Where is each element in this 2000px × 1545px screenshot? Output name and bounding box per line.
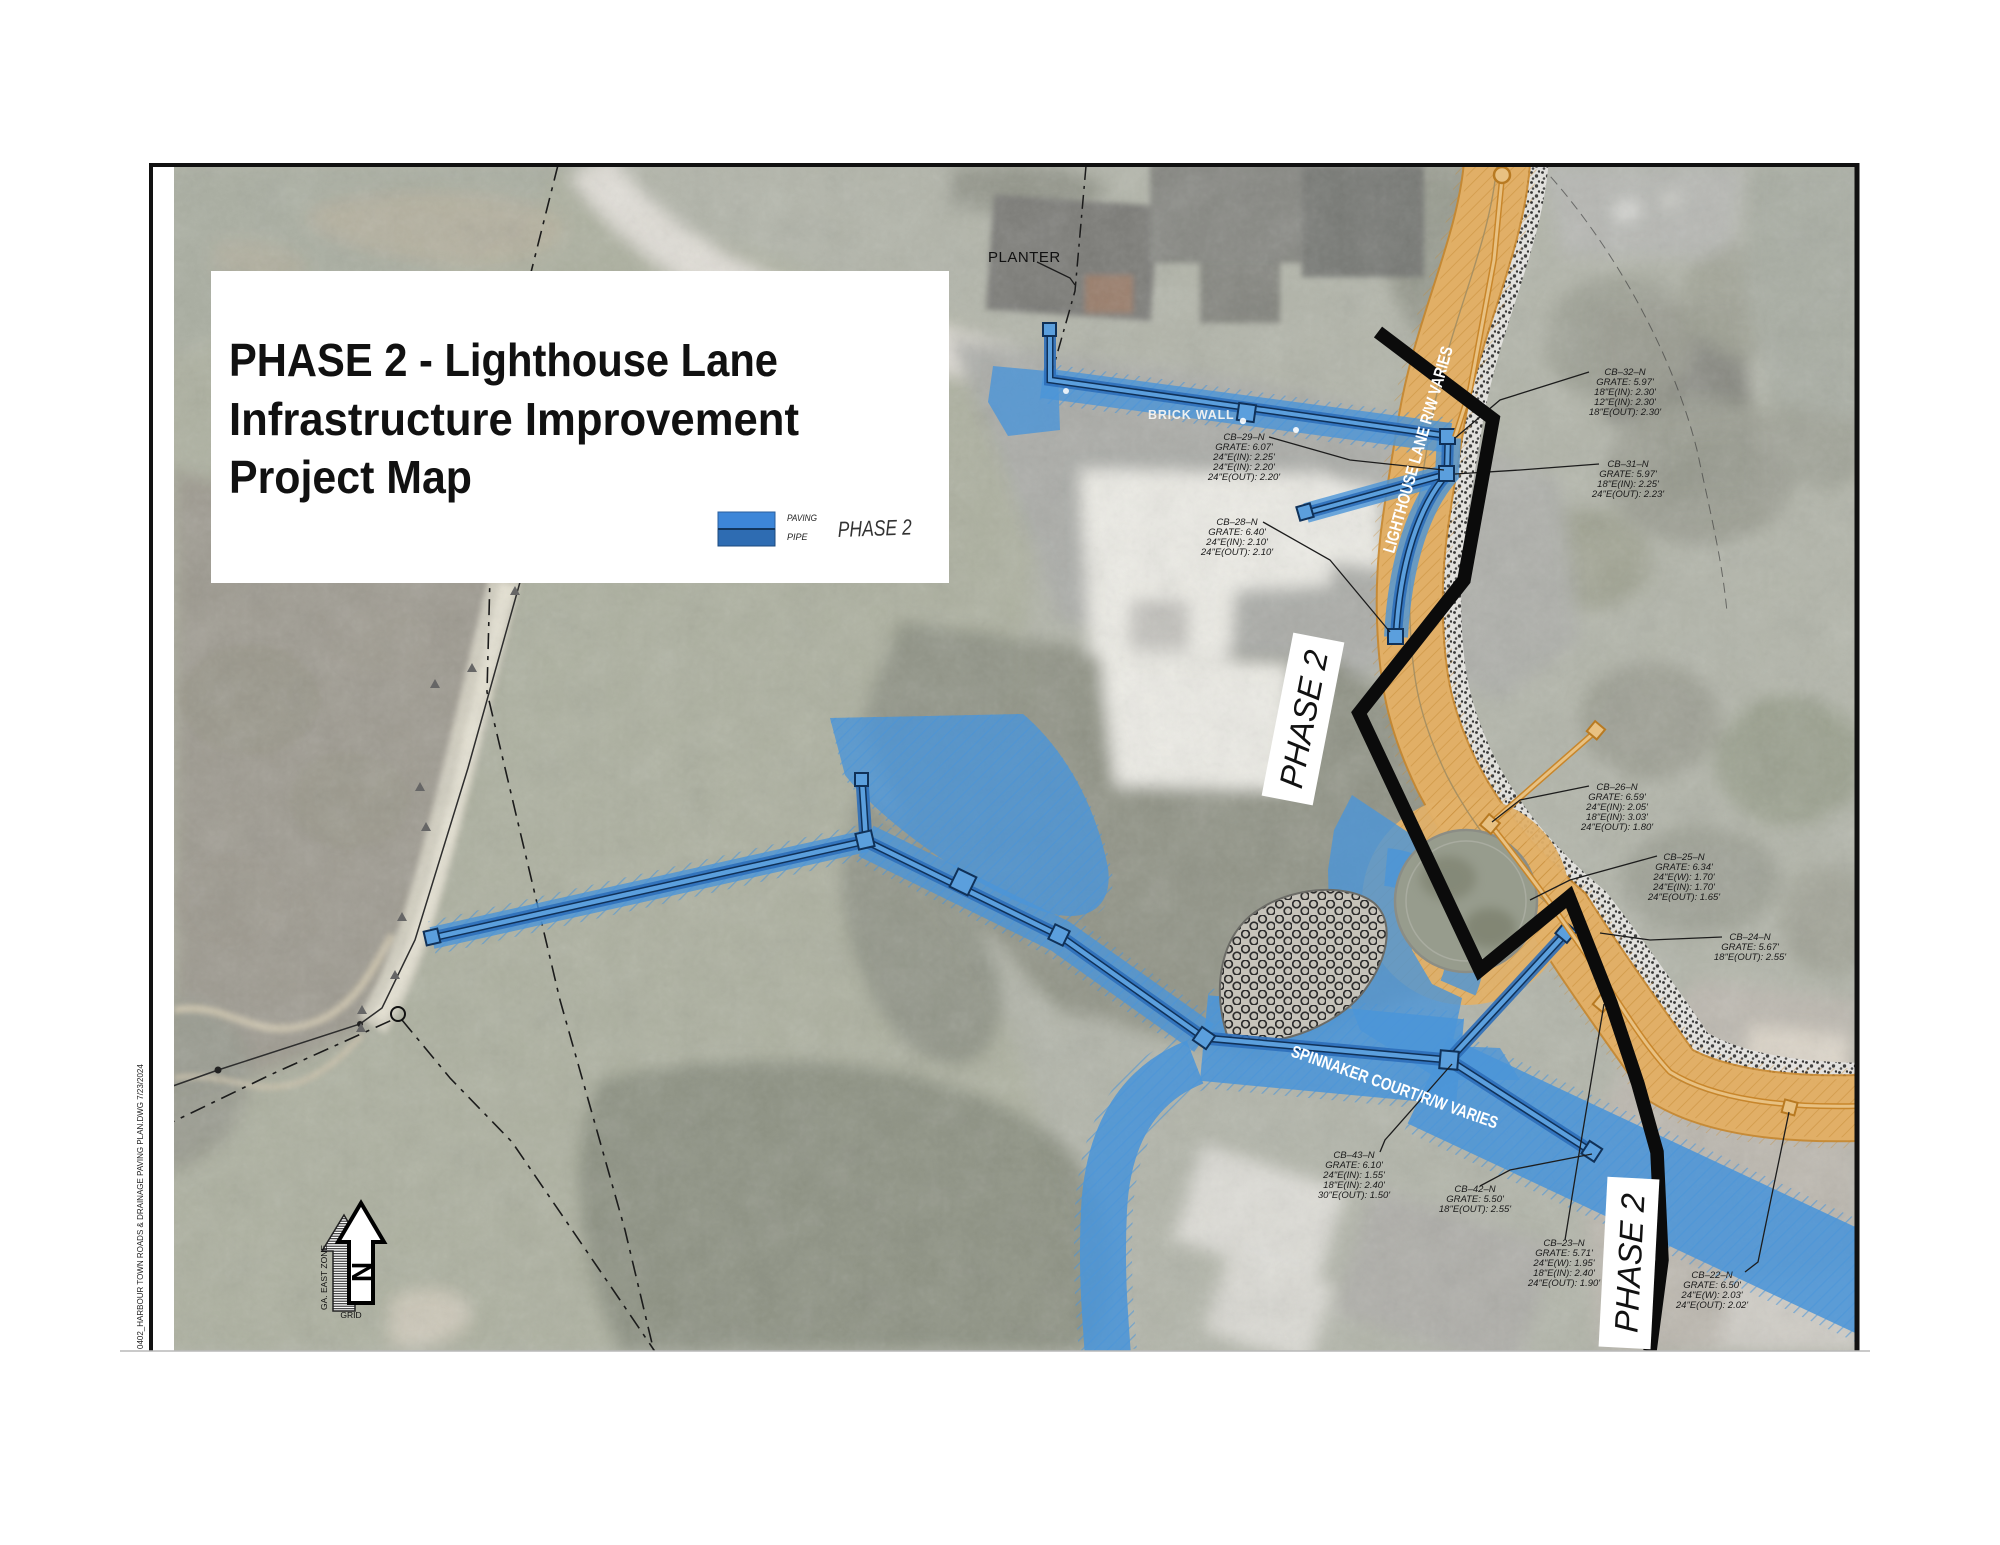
svg-text:N: N [346, 1262, 377, 1282]
svg-text:PHASE 2: PHASE 2 [837, 514, 912, 542]
svg-text:0402_HARBOUR TOWN ROADS & DRAI: 0402_HARBOUR TOWN ROADS & DRAINAGE PAVIN… [136, 1064, 145, 1349]
svg-text:GA. EAST ZONE: GA. EAST ZONE [319, 1245, 329, 1310]
svg-text:PAVING: PAVING [787, 513, 817, 523]
svg-text:Infrastructure Improvement: Infrastructure Improvement [229, 393, 799, 445]
svg-text:BRICK WALL: BRICK WALL [1148, 408, 1234, 422]
svg-text:Project Map: Project Map [229, 451, 472, 503]
svg-text:GRID: GRID [340, 1310, 361, 1320]
svg-text:PHASE 2 - Lighthouse Lane: PHASE 2 - Lighthouse Lane [229, 334, 778, 386]
svg-text:PLANTER: PLANTER [988, 249, 1061, 266]
svg-text:PHASE 2: PHASE 2 [1607, 1192, 1651, 1333]
svg-text:PIPE: PIPE [787, 532, 809, 542]
